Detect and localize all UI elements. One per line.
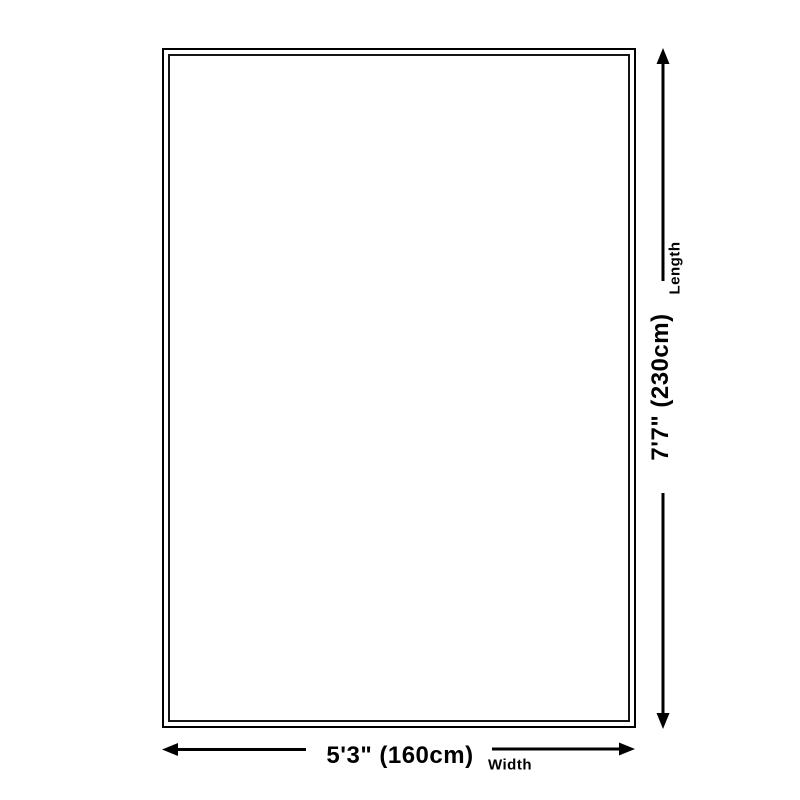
width-dimension-value: 5'3" (160cm): [326, 744, 473, 768]
length-arrow-down-head: [657, 713, 670, 729]
rug-dimension-diagram: 7'7" (230cm) Length 5'3" (160cm) Width: [0, 0, 800, 800]
length-arrow-up-head: [657, 48, 670, 64]
width-axis-label: Width: [488, 758, 532, 773]
width-arrow-right-head: [619, 743, 635, 756]
length-axis-label: Length: [668, 242, 683, 295]
dimension-arrows: [0, 0, 800, 800]
length-dimension-value: 7'7" (230cm): [649, 313, 673, 460]
width-arrow-left-head: [162, 743, 178, 756]
